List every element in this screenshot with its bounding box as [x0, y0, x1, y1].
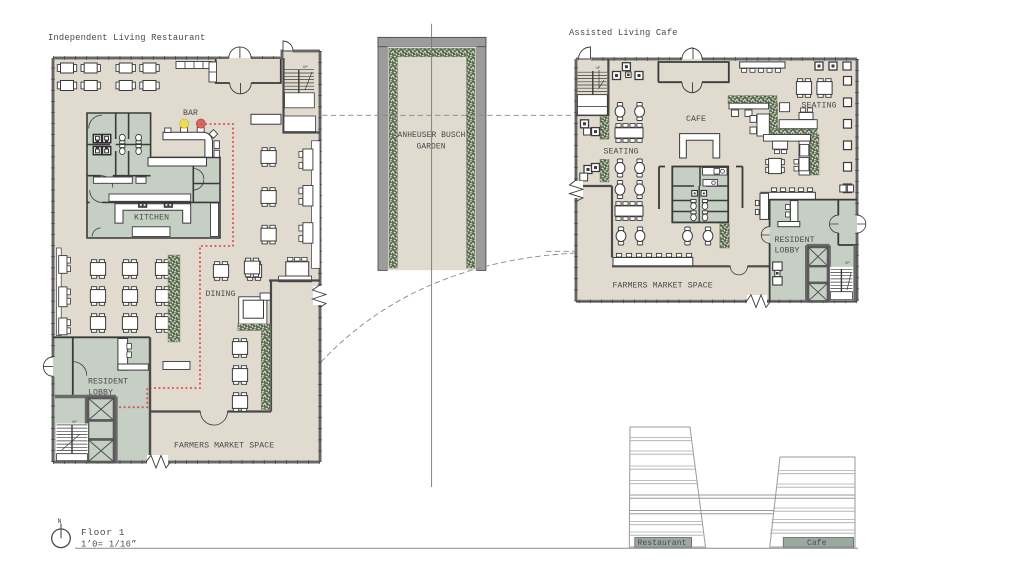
svg-text:BAR: BAR: [183, 109, 198, 118]
svg-text:DINING: DINING: [206, 290, 236, 299]
svg-text:KITCHEN: KITCHEN: [134, 214, 169, 223]
svg-text:CAFE: CAFE: [686, 115, 706, 124]
svg-text:Independent Living Restaurant: Independent Living Restaurant: [48, 33, 205, 43]
svg-text:SEATING: SEATING: [604, 148, 639, 157]
svg-text:SEATING: SEATING: [802, 102, 837, 111]
svg-text:1’0= 1/16”: 1’0= 1/16”: [81, 540, 137, 550]
svg-text:Restaurant: Restaurant: [638, 539, 687, 548]
svg-text:UP: UP: [596, 67, 601, 71]
svg-text:Floor 1: Floor 1: [81, 527, 125, 538]
svg-text:LOBBY: LOBBY: [775, 247, 800, 256]
svg-text:RESIDENT: RESIDENT: [88, 378, 128, 387]
svg-text:Assisted Living Cafe: Assisted Living Cafe: [569, 28, 678, 38]
svg-text:FARMERS MARKET SPACE: FARMERS MARKET SPACE: [174, 442, 274, 451]
svg-text:UP: UP: [303, 66, 308, 70]
svg-text:UP: UP: [72, 421, 77, 425]
svg-text:N: N: [58, 518, 62, 525]
svg-text:RESIDENT: RESIDENT: [775, 236, 815, 245]
svg-text:FARMERS MARKET SPACE: FARMERS MARKET SPACE: [613, 282, 713, 291]
svg-text:GARDEN: GARDEN: [417, 143, 446, 152]
svg-text:UP: UP: [845, 262, 850, 266]
svg-text:Cafe: Cafe: [807, 539, 827, 548]
